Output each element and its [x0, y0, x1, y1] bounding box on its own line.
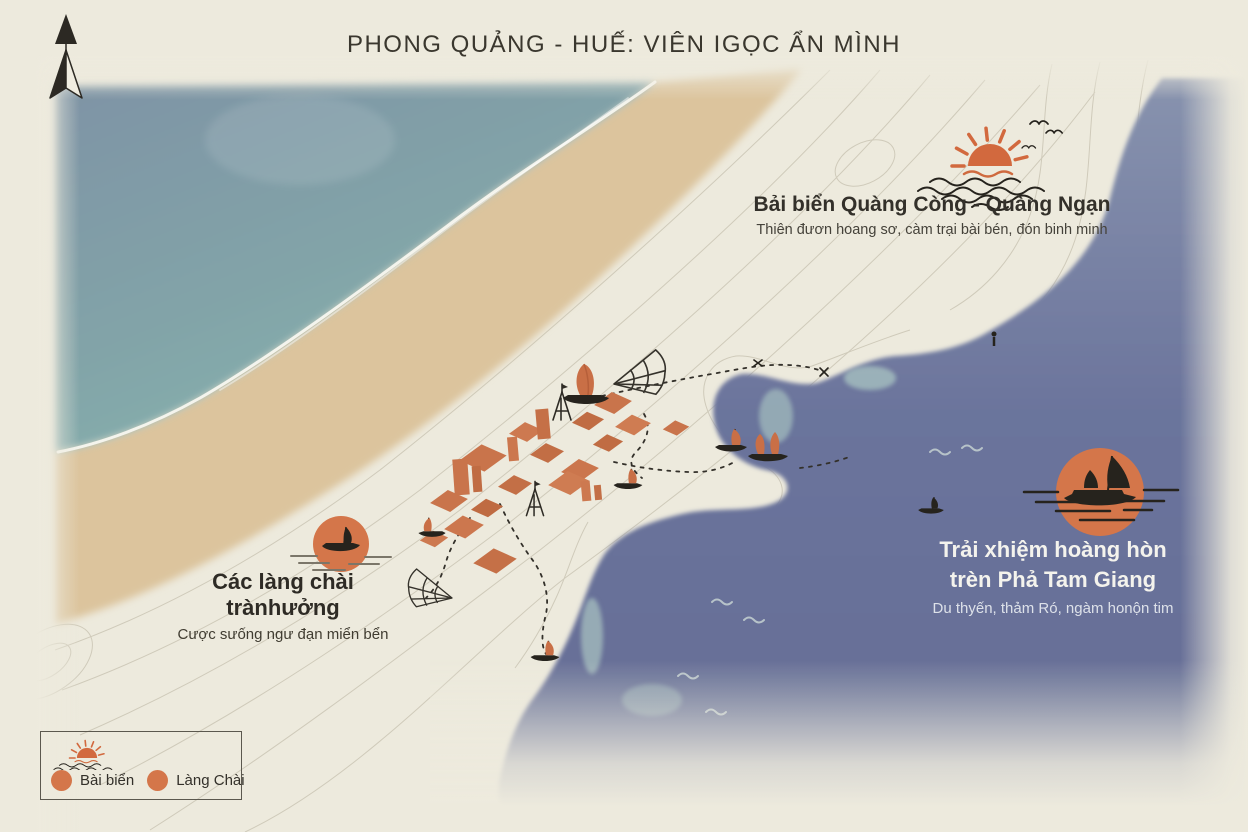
poi-label-beach: Bải biển Quàng Còng - Quàng Ngạn Thiên đ… — [752, 193, 1112, 238]
beach-marker-dot — [51, 770, 72, 791]
legend-item-village: Làng Chài — [147, 770, 244, 791]
legend-item-beach: Bài biển — [51, 770, 134, 791]
village-marker-dot — [147, 770, 168, 791]
poi-label-lagoon: Trải xhiệm hoàng hòn trèn Phả Tam Giang … — [918, 535, 1188, 617]
legend-row: Bài biển Làng Chài — [51, 770, 245, 791]
sunrise-icon — [49, 734, 139, 770]
poi-lagoon-name-line2: trèn Phả Tam Giang — [950, 567, 1156, 592]
legend-label-village: Làng Chài — [176, 772, 244, 789]
poi-beach-name: Bải biển Quàng Còng - Quàng Ngạn — [752, 193, 1112, 217]
poi-village-description: Cược sưống ngư đạn miển bển — [158, 626, 408, 643]
legend: Bài biển Làng Chài — [40, 731, 242, 800]
poi-label-village: Các làng chài trànhưởng Cược sưống ngư đ… — [158, 569, 408, 643]
poi-beach-description: Thiên đươn hoang sơ, càm trại bài bén, đ… — [752, 222, 1112, 238]
sea-highlight — [205, 95, 395, 185]
poi-village-name: Các làng chài trànhưởng — [158, 569, 408, 621]
page-title: PHONG QUẢNG - HUẾ: VIÊN IGỌC ẨN MÌNH — [0, 31, 1248, 59]
poi-lagoon-description: Du thyến, thảm Ró, ngàm honộn tim — [918, 600, 1188, 617]
poi-lagoon-name-line1: Trải xhiệm hoàng hòn — [939, 537, 1166, 562]
map-poster: PHONG QUẢNG - HUẾ: VIÊN IGỌC ẨN MÌNH Bải… — [0, 0, 1248, 832]
map-artwork — [0, 0, 1248, 832]
legend-label-beach: Bài biển — [80, 772, 134, 789]
poi-lagoon-name: Trải xhiệm hoàng hòn trèn Phả Tam Giang — [918, 535, 1188, 595]
